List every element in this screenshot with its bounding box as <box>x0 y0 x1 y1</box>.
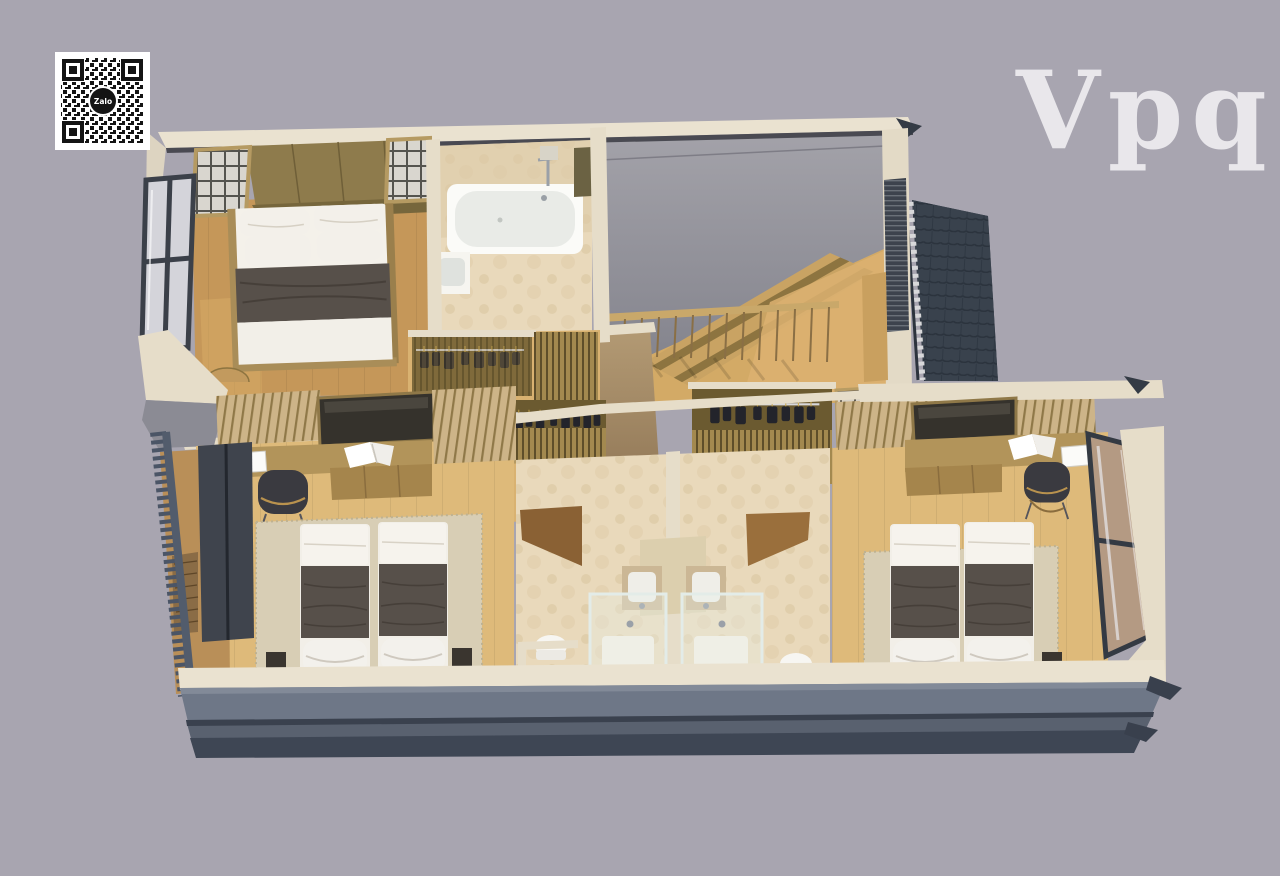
wardrobe-upper <box>408 330 536 396</box>
wall-niche <box>574 147 592 197</box>
louver-window <box>884 178 909 332</box>
desk-window <box>318 392 434 446</box>
soffit-slats-left <box>216 390 322 446</box>
bathrooms-lower <box>516 448 830 682</box>
shoji-window-left <box>193 147 250 216</box>
zalo-logo-label: Zalo <box>94 97 112 106</box>
bottom-facade <box>178 660 1182 758</box>
floor-plan-render: Zalo Vpq <box>0 0 1280 876</box>
notepad <box>1061 445 1091 467</box>
watermark-text: Vpq <box>1015 48 1275 174</box>
zalo-qr-code: Zalo <box>55 52 150 150</box>
nightstand <box>452 648 472 666</box>
soffit-slats-right <box>432 386 516 464</box>
roof <box>906 200 998 381</box>
bathtub <box>447 184 583 254</box>
bed-blanket <box>235 263 391 322</box>
render-svg: Zalo Vpq <box>0 0 1280 876</box>
shoji-window-right <box>386 138 430 202</box>
double-bed <box>227 203 399 372</box>
desk-window-right <box>912 398 1016 442</box>
upper-bathroom <box>426 127 610 343</box>
master-balcony-glass-doors <box>142 176 194 348</box>
